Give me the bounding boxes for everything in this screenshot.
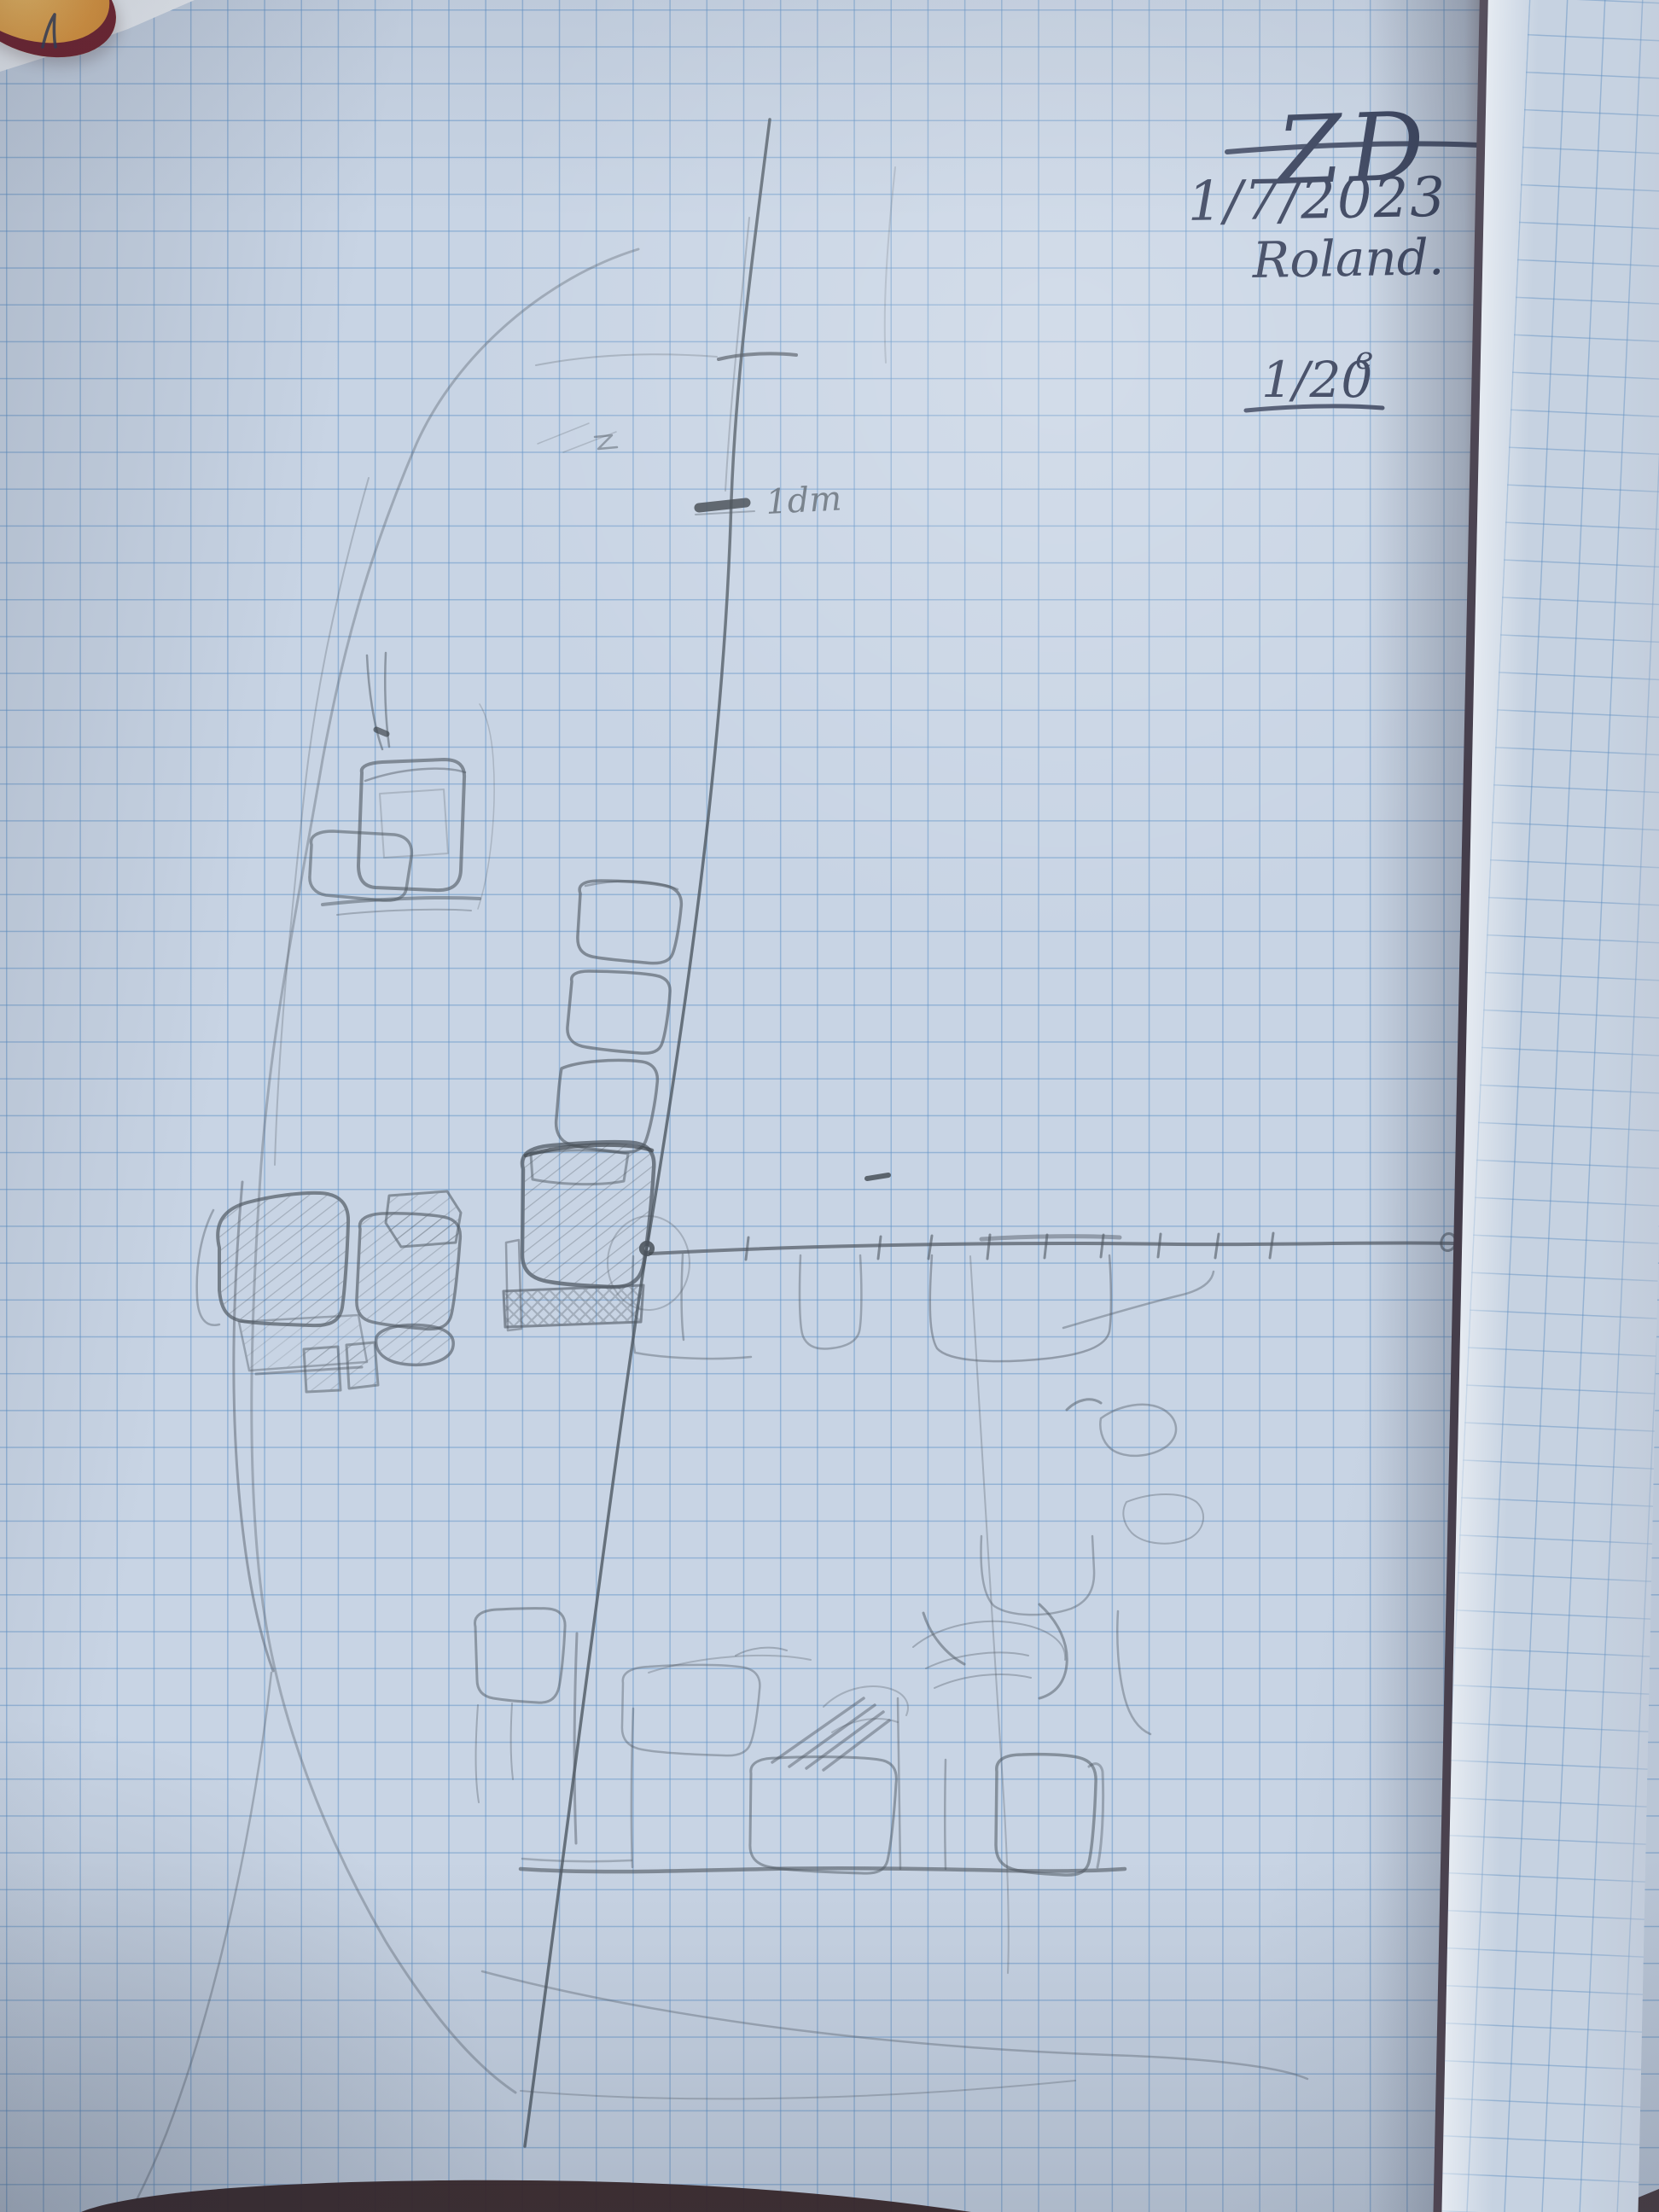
big-left-stone-edge [197,1210,219,1325]
stone-legs [632,1698,946,1869]
notebook-photo: ZD 1/7/2023 Roland. 1/20 e 1dm [0,0,1659,2212]
low-left-stone [475,1609,566,1703]
low-right-stone [996,1755,1096,1876]
low-wide-stone-top [649,1656,811,1673]
hatch-strip [504,1285,643,1327]
u-stone-1 [800,1255,861,1348]
corner-mark [43,15,55,47]
stone-ul-a-inner [380,789,448,858]
axis-tick-label-text: 1dm [765,479,842,522]
bottom-sweep-2 [521,2081,1075,2098]
col-stone-2 [568,971,670,1053]
level-line [650,1243,1453,1254]
low-mid-stone [750,1757,896,1873]
table-edge-strip [81,2180,971,2212]
faint-line-right [885,167,895,363]
upper-fingers [736,1621,1065,1688]
mid-u-stone [981,1536,1095,1615]
axis-tick-2 [699,503,746,508]
stone-neck-blob [376,730,387,734]
mid-hook [1067,1400,1101,1410]
stone-ul-base-2 [337,910,471,915]
balk-inner [275,478,369,1165]
level-line-2 [981,1237,1120,1239]
mid-squiggle-1 [1100,1405,1176,1456]
small-z-squiggle [595,435,617,449]
dash-mark [867,1175,888,1179]
curly-top-right [1117,1611,1150,1734]
t-stones [632,1254,751,1359]
light-right-curve [478,704,494,909]
bottom-sweep-1 [482,1971,1307,2079]
small-square-2 [346,1342,378,1388]
stone-ul-a-top [365,769,465,781]
low-left-legs [476,1703,514,1802]
handwriting-group: ZD 1/7/2023 Roland. 1/20 e 1dm [765,91,1447,522]
stone-ul-base [323,898,480,905]
big-left-stone [218,1193,348,1325]
u-stone-2 [930,1255,1111,1361]
left-hex-stone [386,1191,461,1247]
mid-squiggle-2 [1123,1494,1203,1544]
stone-ul-a [358,760,464,890]
col-stone-3 [556,1060,658,1152]
low-wide-stone [622,1665,760,1755]
left-bottom-line [137,1673,271,2200]
hatch-stone [522,1142,654,1287]
baseline-2 [522,1859,632,1861]
hatch-oval [376,1325,454,1365]
axis-tick-1 [719,353,796,359]
col-stone-1 [578,881,681,963]
right-curve [1063,1272,1214,1328]
axis-bar-low [574,1633,577,1843]
top-faint-marks [536,354,717,365]
